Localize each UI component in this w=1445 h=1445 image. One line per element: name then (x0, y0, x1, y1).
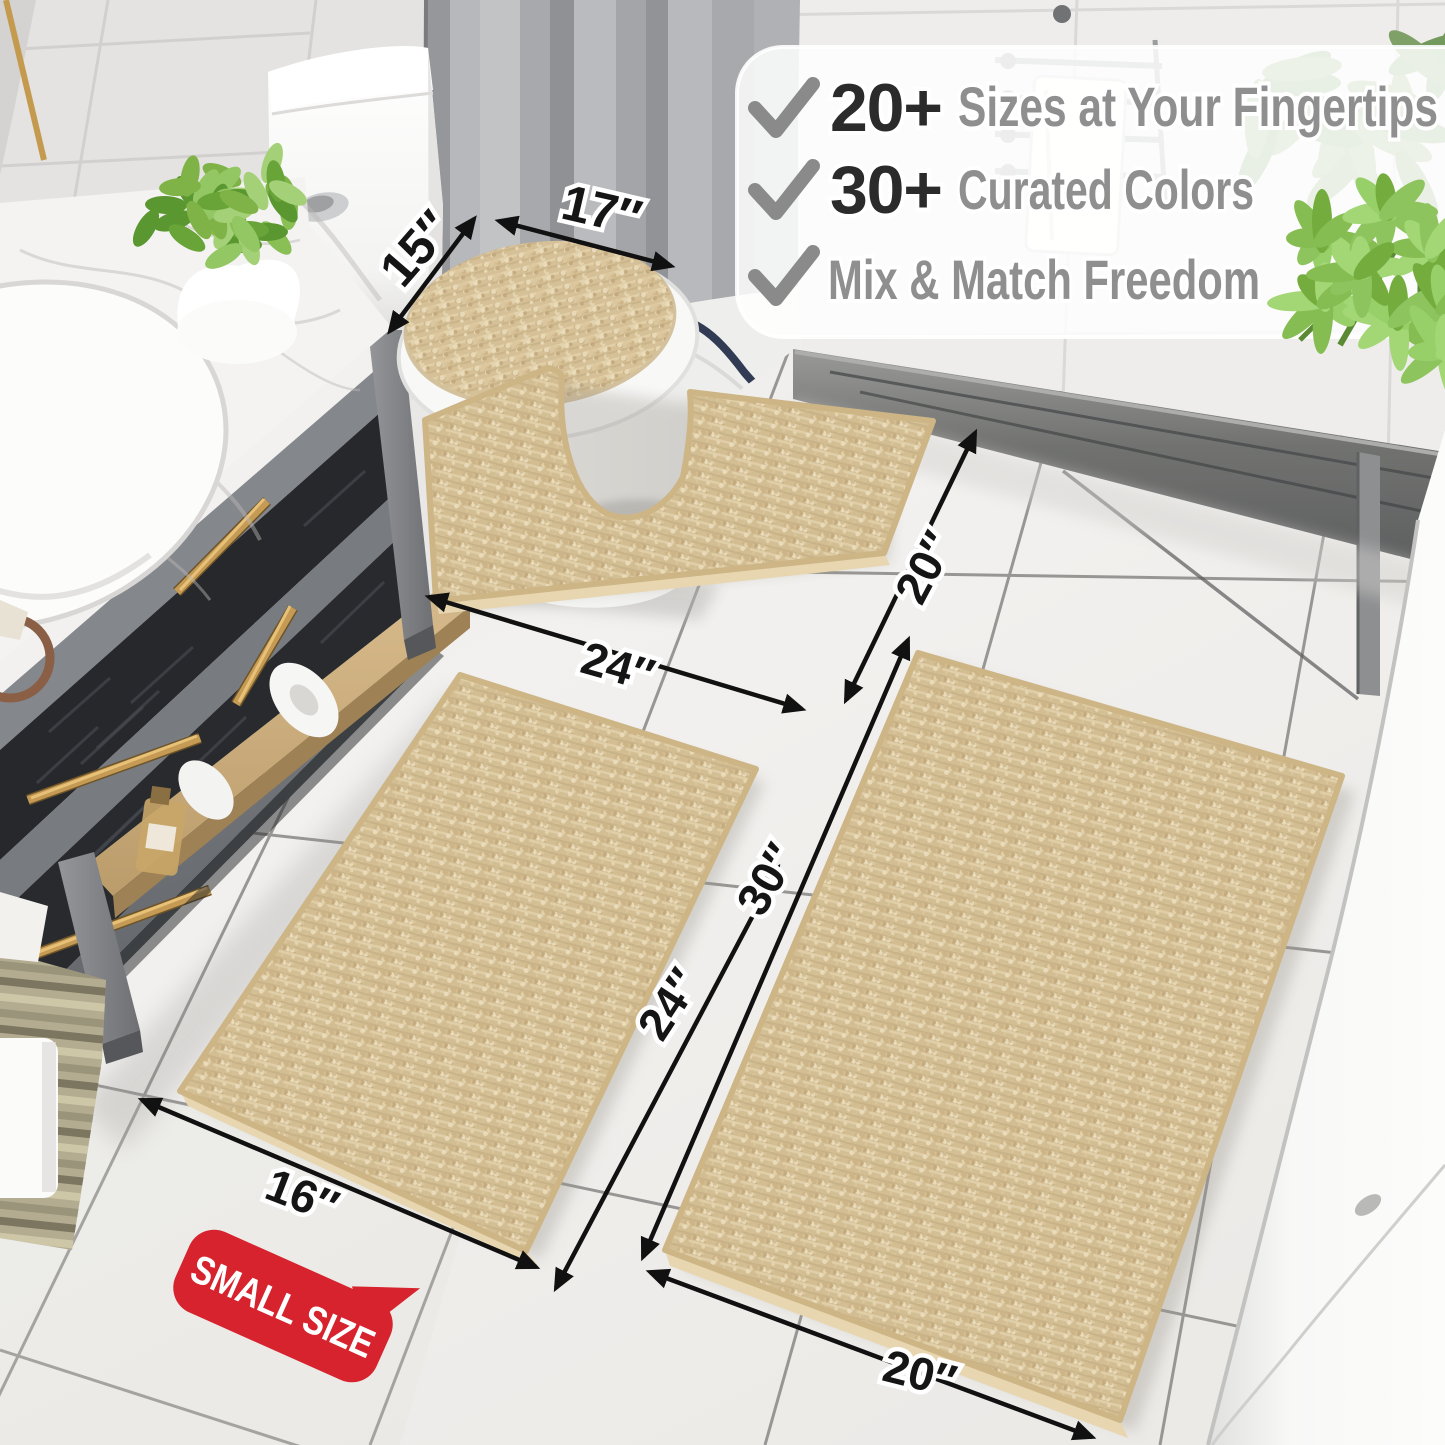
svg-text:30+: 30+ (830, 152, 943, 228)
svg-text:Mix & Match Freedom: Mix & Match Freedom (828, 248, 1260, 311)
svg-text:Sizes at Your Fingertips: Sizes at Your Fingertips (958, 75, 1438, 138)
svg-text:Curated Colors: Curated Colors (958, 158, 1254, 221)
svg-text:20+: 20+ (830, 70, 943, 146)
